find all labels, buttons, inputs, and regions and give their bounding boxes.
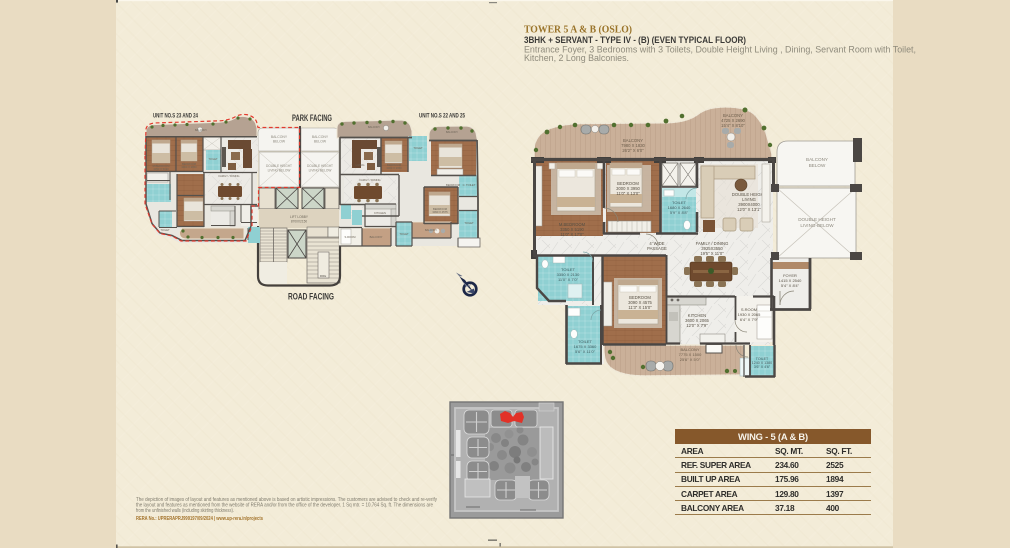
svg-text:BALCONY: BALCONY bbox=[446, 131, 458, 134]
svg-text:TOILET: TOILET bbox=[464, 221, 474, 225]
svg-text:FIRE: FIRE bbox=[320, 274, 327, 278]
svg-text:C. TOILET: C. TOILET bbox=[463, 183, 476, 187]
svg-text:PARK FACING: PARK FACING bbox=[292, 113, 332, 123]
svg-text:LIVING-BELOW: LIVING-BELOW bbox=[800, 223, 834, 228]
svg-text:6'4" X 7'9": 6'4" X 7'9" bbox=[740, 317, 759, 322]
svg-text:UNIT NO.S 23 AND 24: UNIT NO.S 23 AND 24 bbox=[153, 114, 198, 120]
svg-text:PASSAGE: PASSAGE bbox=[647, 246, 667, 251]
svg-text:LIVING BELOW: LIVING BELOW bbox=[309, 169, 332, 173]
svg-text:BALCONY: BALCONY bbox=[425, 229, 437, 232]
svg-text:BALCONY: BALCONY bbox=[370, 235, 383, 239]
svg-text:3'6" X 4'6": 3'6" X 4'6" bbox=[754, 365, 771, 369]
svg-text:TOILET: TOILET bbox=[413, 146, 423, 150]
svg-text:11'3" X 15'0": 11'3" X 15'0" bbox=[628, 305, 652, 310]
svg-text:3090 X 4575: 3090 X 4575 bbox=[432, 210, 448, 214]
svg-text:DOUBLE HEIGHT: DOUBLE HEIGHT bbox=[798, 217, 836, 222]
svg-text:12'0" X 13'1": 12'0" X 13'1" bbox=[737, 207, 761, 212]
svg-text:8700X2150: 8700X2150 bbox=[291, 220, 308, 224]
svg-text:KITCHEN: KITCHEN bbox=[374, 211, 386, 215]
svg-text:25'6" X 5'0": 25'6" X 5'0" bbox=[680, 357, 701, 362]
svg-text:DOUBLE HEIGHT: DOUBLE HEIGHT bbox=[266, 164, 292, 168]
svg-text:5'6" X 11'0": 5'6" X 11'0" bbox=[575, 349, 596, 354]
svg-text:26'2" X 6'0": 26'2" X 6'0" bbox=[622, 148, 644, 153]
svg-text:BALCONY: BALCONY bbox=[312, 135, 329, 139]
svg-text:5'4" X 8'4": 5'4" X 8'4" bbox=[781, 283, 800, 288]
svg-text:BELOW: BELOW bbox=[273, 140, 286, 144]
svg-text:11'0" X 7'0": 11'0" X 7'0" bbox=[558, 277, 579, 282]
svg-text:12'0" X 7'9": 12'0" X 7'9" bbox=[686, 323, 708, 328]
svg-text:DOUBLE HEIGHT: DOUBLE HEIGHT bbox=[307, 164, 333, 168]
svg-text:BELOW: BELOW bbox=[809, 163, 826, 168]
svg-text:11'0" X 13'0": 11'0" X 13'0" bbox=[616, 191, 640, 196]
svg-text:BALCONY: BALCONY bbox=[806, 157, 828, 162]
svg-text:TOWER 5 A & B (OSLO): TOWER 5 A & B (OSLO) bbox=[524, 23, 632, 35]
svg-text:TOILET: TOILET bbox=[399, 232, 409, 236]
svg-text:FAMILY / DINING: FAMILY / DINING bbox=[360, 178, 381, 182]
svg-text:S.ROOM: S.ROOM bbox=[345, 235, 357, 239]
svg-text:Kitchen, 2 Long Balconies.: Kitchen, 2 Long Balconies. bbox=[524, 53, 629, 63]
svg-text:3350 X 5190: 3350 X 5190 bbox=[153, 167, 169, 171]
svg-text:from the unfinished walls (inc: from the unfinished walls (including ski… bbox=[136, 508, 234, 514]
svg-text:5'9" X 8'8": 5'9" X 8'8" bbox=[670, 210, 689, 215]
svg-text:LIFT LOBBY: LIFT LOBBY bbox=[290, 215, 309, 219]
svg-text:LIVING BELOW: LIVING BELOW bbox=[268, 169, 291, 173]
svg-text:FAMILY / DINING: FAMILY / DINING bbox=[219, 174, 240, 178]
svg-text:ROAD FACING: ROAD FACING bbox=[288, 292, 334, 302]
svg-text:LIVING: LIVING bbox=[356, 163, 365, 167]
svg-text:BALCONY: BALCONY bbox=[195, 129, 207, 132]
svg-text:TOILET: TOILET bbox=[160, 228, 170, 232]
svg-text:TOILET: TOILET bbox=[208, 157, 218, 161]
svg-text:BALCONY: BALCONY bbox=[368, 126, 380, 129]
svg-text:BALCONY: BALCONY bbox=[271, 135, 288, 139]
svg-text:11'0" X 17'0": 11'0" X 17'0" bbox=[560, 232, 584, 237]
svg-text:3000 X 3950: 3000 X 3950 bbox=[181, 165, 197, 169]
svg-text:3000 X 3950: 3000 X 3950 bbox=[386, 166, 402, 170]
svg-text:15'4" X 8'10": 15'4" X 8'10" bbox=[721, 123, 745, 128]
svg-text:BELOW: BELOW bbox=[314, 140, 327, 144]
svg-text:19'5" X 11'0": 19'5" X 11'0" bbox=[700, 251, 724, 256]
svg-text:UNIT NO.S 22 AND 25: UNIT NO.S 22 AND 25 bbox=[419, 114, 465, 120]
svg-text:RERA No.: UPRERAPRJ999197/09/2: RERA No.: UPRERAPRJ999197/09/2024 | www.… bbox=[136, 516, 263, 522]
